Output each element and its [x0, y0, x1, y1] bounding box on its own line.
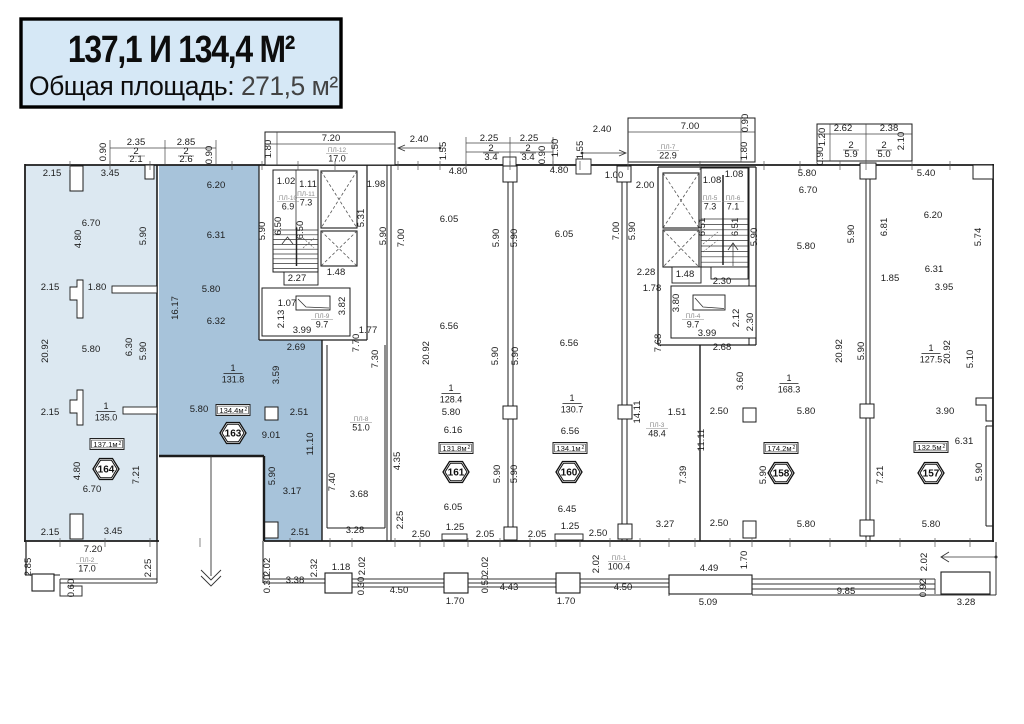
svg-text:5.80: 5.80	[190, 404, 209, 415]
svg-text:2.02: 2.02	[262, 558, 273, 577]
svg-text:7.21: 7.21	[875, 466, 886, 485]
svg-text:6.32: 6.32	[207, 316, 226, 327]
svg-text:163: 163	[225, 429, 242, 440]
svg-text:6.9: 6.9	[282, 202, 295, 212]
svg-text:6.56: 6.56	[440, 321, 459, 332]
svg-text:0.90: 0.90	[204, 146, 215, 165]
svg-text:5.90: 5.90	[627, 222, 638, 241]
svg-text:1.70: 1.70	[739, 551, 750, 570]
svg-text:2.15: 2.15	[41, 407, 60, 418]
svg-text:6.51: 6.51	[697, 218, 708, 237]
svg-text:2: 2	[119, 441, 122, 447]
svg-text:127.5: 127.5	[920, 355, 943, 365]
svg-text:1.78: 1.78	[643, 283, 662, 294]
svg-text:6.70: 6.70	[799, 185, 818, 196]
svg-text:6.31: 6.31	[207, 230, 226, 241]
svg-text:2.15: 2.15	[41, 282, 60, 293]
svg-text:5.80: 5.80	[797, 241, 816, 252]
svg-text:1: 1	[928, 343, 933, 353]
svg-text:3.45: 3.45	[101, 168, 120, 179]
svg-text:7.20: 7.20	[84, 544, 103, 555]
svg-text:1.50: 1.50	[550, 139, 561, 158]
svg-text:2.85: 2.85	[23, 558, 34, 577]
svg-text:5.90: 5.90	[758, 466, 769, 485]
svg-text:2.05: 2.05	[528, 529, 547, 540]
svg-text:6.31: 6.31	[955, 436, 974, 447]
svg-text:7.21: 7.21	[131, 466, 142, 485]
svg-text:4.80: 4.80	[550, 165, 569, 176]
svg-text:135.0: 135.0	[95, 413, 118, 423]
svg-text:1: 1	[448, 383, 453, 393]
svg-text:131.8: 131.8	[222, 375, 245, 385]
svg-text:5.90: 5.90	[846, 225, 857, 244]
svg-text:2.40: 2.40	[593, 124, 612, 135]
svg-text:4.50: 4.50	[614, 582, 633, 593]
svg-text:6.56: 6.56	[561, 426, 580, 437]
svg-text:1.11: 1.11	[299, 179, 317, 190]
svg-text:3.28: 3.28	[957, 597, 976, 608]
svg-text:2.25: 2.25	[143, 559, 154, 578]
svg-text:7.00: 7.00	[396, 229, 407, 248]
svg-text:2.62: 2.62	[834, 123, 853, 134]
svg-text:1.85: 1.85	[881, 273, 900, 284]
svg-text:51.0: 51.0	[352, 423, 370, 433]
svg-text:6.16: 6.16	[444, 425, 463, 436]
svg-text:1.25: 1.25	[446, 522, 465, 533]
svg-text:2.51: 2.51	[290, 407, 309, 418]
svg-text:7.68: 7.68	[653, 334, 664, 353]
svg-text:1: 1	[569, 393, 574, 403]
svg-text:3.17: 3.17	[283, 486, 302, 497]
svg-text:7.70: 7.70	[351, 334, 362, 353]
svg-text:2.25: 2.25	[395, 511, 406, 530]
svg-text:3.59: 3.59	[271, 366, 282, 385]
svg-text:9.7: 9.7	[316, 320, 329, 330]
svg-text:3.38: 3.38	[286, 575, 305, 586]
svg-text:6.70: 6.70	[82, 218, 101, 229]
svg-text:0.60: 0.60	[66, 579, 77, 598]
svg-text:3.99: 3.99	[698, 328, 717, 339]
svg-text:1.08: 1.08	[725, 169, 744, 180]
svg-text:4.80: 4.80	[73, 230, 84, 249]
svg-text:7.00: 7.00	[681, 121, 700, 132]
svg-text:100.4: 100.4	[608, 562, 631, 572]
svg-text:2: 2	[582, 445, 585, 451]
svg-text:2.30: 2.30	[713, 276, 732, 287]
svg-text:3.80: 3.80	[671, 294, 682, 313]
svg-text:9.7: 9.7	[687, 320, 700, 330]
svg-text:6.31: 6.31	[925, 264, 944, 275]
svg-text:2.10: 2.10	[896, 132, 907, 151]
svg-text:3.28: 3.28	[346, 525, 365, 536]
svg-text:6.45: 6.45	[558, 504, 577, 515]
svg-text:Общая площадь: 271,5 м²: Общая площадь: 271,5 м²	[29, 71, 338, 101]
svg-text:3.82: 3.82	[337, 297, 348, 316]
svg-text:2: 2	[793, 445, 796, 451]
svg-text:2.68: 2.68	[713, 342, 732, 353]
svg-text:1.48: 1.48	[676, 269, 695, 280]
svg-text:5.80: 5.80	[202, 284, 221, 295]
svg-text:1.48: 1.48	[327, 267, 346, 278]
svg-text:6.20: 6.20	[207, 180, 226, 191]
svg-text:5.90: 5.90	[491, 229, 502, 248]
svg-text:6.05: 6.05	[444, 502, 463, 513]
svg-text:168.3: 168.3	[778, 385, 801, 395]
svg-text:5.90: 5.90	[509, 465, 520, 484]
svg-text:1.80: 1.80	[88, 282, 107, 293]
svg-text:0.50: 0.50	[480, 575, 491, 594]
svg-text:1.98: 1.98	[367, 179, 386, 190]
svg-text:4.35: 4.35	[392, 452, 403, 471]
svg-text:1.02: 1.02	[277, 176, 296, 187]
svg-text:3.45: 3.45	[104, 526, 123, 537]
svg-text:0.90: 0.90	[537, 146, 548, 165]
svg-text:2: 2	[245, 407, 248, 413]
svg-text:20.92: 20.92	[421, 341, 432, 365]
svg-text:2.30: 2.30	[745, 313, 756, 332]
svg-text:157: 157	[923, 469, 940, 480]
svg-text:9.85: 9.85	[837, 586, 856, 597]
svg-text:6.81: 6.81	[879, 218, 890, 237]
svg-text:5.80: 5.80	[797, 519, 816, 530]
svg-text:6.20: 6.20	[924, 210, 943, 221]
svg-text:16.17: 16.17	[170, 296, 181, 320]
svg-text:164: 164	[98, 465, 115, 476]
svg-text:2.02: 2.02	[357, 557, 368, 576]
svg-text:1.08: 1.08	[703, 175, 722, 186]
svg-text:2: 2	[468, 445, 471, 451]
svg-text:5.90: 5.90	[138, 342, 149, 361]
svg-text:5.90: 5.90	[749, 228, 760, 247]
svg-text:5.90: 5.90	[138, 227, 149, 246]
svg-text:3.99: 3.99	[293, 325, 312, 336]
svg-text:20.92: 20.92	[942, 340, 953, 364]
svg-text:2.12: 2.12	[731, 309, 742, 328]
svg-text:5.0: 5.0	[877, 149, 890, 160]
svg-text:5.80: 5.80	[82, 344, 101, 355]
svg-text:11.11: 11.11	[696, 429, 707, 451]
svg-text:174.2м: 174.2м	[767, 444, 791, 453]
svg-text:2.50: 2.50	[412, 529, 431, 540]
svg-text:1.18: 1.18	[332, 562, 351, 573]
svg-text:2.69: 2.69	[287, 342, 306, 353]
svg-text:48.4: 48.4	[648, 429, 666, 439]
svg-text:132.5м: 132.5м	[917, 443, 941, 452]
svg-text:6.30: 6.30	[124, 338, 135, 357]
svg-text:161: 161	[448, 468, 465, 479]
svg-text:1.55: 1.55	[438, 142, 449, 161]
svg-text:2.02: 2.02	[480, 557, 491, 576]
svg-text:6.51: 6.51	[730, 218, 741, 237]
svg-text:6.50: 6.50	[273, 217, 284, 236]
svg-text:160: 160	[561, 468, 578, 479]
svg-text:4.80: 4.80	[72, 462, 83, 481]
svg-text:5.90: 5.90	[492, 465, 503, 484]
svg-text:137.1м: 137.1м	[93, 440, 117, 449]
svg-text:2.13: 2.13	[276, 310, 287, 329]
svg-text:0.30: 0.30	[356, 577, 367, 596]
svg-text:11.10: 11.10	[305, 432, 316, 455]
svg-text:3.90: 3.90	[936, 406, 955, 417]
svg-text:7.3: 7.3	[300, 198, 313, 208]
svg-text:6.70: 6.70	[83, 484, 102, 495]
svg-text:7.40: 7.40	[327, 473, 338, 492]
svg-text:5.90: 5.90	[267, 467, 278, 486]
svg-text:2.32: 2.32	[309, 559, 320, 578]
svg-text:158: 158	[773, 469, 790, 480]
svg-text:5.80: 5.80	[922, 519, 941, 530]
svg-text:2.15: 2.15	[41, 527, 60, 538]
svg-text:2.51: 2.51	[291, 527, 310, 538]
svg-text:2: 2	[943, 444, 946, 450]
svg-text:3.95: 3.95	[935, 282, 954, 293]
svg-text:1.80: 1.80	[263, 140, 274, 159]
svg-text:5.90: 5.90	[509, 229, 520, 248]
svg-text:1.07: 1.07	[278, 298, 297, 309]
svg-text:5.80: 5.80	[798, 168, 817, 179]
svg-text:7.30: 7.30	[370, 350, 381, 369]
svg-text:1.51: 1.51	[668, 407, 687, 418]
svg-text:3.4: 3.4	[521, 152, 534, 163]
svg-text:17.0: 17.0	[328, 154, 346, 164]
svg-text:7.1: 7.1	[727, 202, 740, 212]
svg-text:3.68: 3.68	[350, 489, 369, 500]
svg-text:5.90: 5.90	[856, 342, 867, 361]
svg-text:5.74: 5.74	[973, 228, 984, 247]
svg-text:1.20: 1.20	[817, 128, 828, 147]
svg-text:5.90: 5.90	[510, 347, 521, 366]
svg-text:4.49: 4.49	[700, 563, 719, 574]
svg-text:2.40: 2.40	[410, 134, 429, 145]
svg-text:2.6: 2.6	[179, 154, 192, 165]
svg-text:6.05: 6.05	[555, 229, 574, 240]
svg-text:4.43: 4.43	[500, 582, 519, 593]
svg-text:6.05: 6.05	[440, 214, 459, 225]
svg-text:2.27: 2.27	[288, 273, 307, 284]
svg-text:1: 1	[103, 401, 108, 411]
svg-text:5.40: 5.40	[917, 168, 936, 179]
svg-text:17.0: 17.0	[78, 564, 96, 574]
svg-text:5.90: 5.90	[257, 222, 268, 241]
svg-text:2.02: 2.02	[591, 555, 602, 574]
svg-text:5.90: 5.90	[974, 463, 985, 482]
svg-text:5.80: 5.80	[442, 407, 461, 418]
svg-text:2.05: 2.05	[476, 529, 495, 540]
svg-text:2.50: 2.50	[589, 528, 608, 539]
svg-text:1.80: 1.80	[739, 142, 750, 161]
svg-text:20.92: 20.92	[40, 339, 51, 363]
svg-text:5.10: 5.10	[965, 350, 976, 369]
svg-text:3.4: 3.4	[484, 152, 497, 163]
svg-text:0.90: 0.90	[740, 114, 751, 133]
svg-text:2.00: 2.00	[636, 180, 655, 191]
svg-text:5.9: 5.9	[844, 149, 857, 160]
svg-text:134.1м: 134.1м	[556, 444, 580, 453]
svg-text:5.90: 5.90	[490, 347, 501, 366]
svg-text:0.90: 0.90	[98, 143, 109, 162]
svg-text:6.50: 6.50	[295, 221, 306, 240]
svg-text:4.50: 4.50	[390, 585, 409, 596]
svg-text:2.1: 2.1	[129, 154, 142, 165]
svg-text:3.60: 3.60	[735, 372, 746, 391]
svg-text:1.70: 1.70	[446, 596, 465, 607]
svg-text:131.8м: 131.8м	[442, 444, 466, 453]
svg-text:5.31: 5.31	[356, 209, 367, 228]
svg-text:1: 1	[786, 373, 791, 383]
svg-text:3.27: 3.27	[656, 519, 675, 530]
svg-text:2.50: 2.50	[710, 406, 729, 417]
svg-text:7.20: 7.20	[322, 133, 341, 144]
svg-text:2.15: 2.15	[43, 168, 62, 179]
svg-text:9.01: 9.01	[262, 430, 281, 441]
svg-text:1.70: 1.70	[557, 596, 576, 607]
svg-text:5.09: 5.09	[699, 597, 718, 608]
svg-text:2.28: 2.28	[637, 267, 656, 278]
svg-text:1.00: 1.00	[605, 170, 624, 181]
svg-text:0.92: 0.92	[918, 579, 929, 598]
svg-text:0.90: 0.90	[815, 147, 826, 166]
svg-text:7.39: 7.39	[678, 466, 689, 485]
svg-text:1.25: 1.25	[561, 521, 580, 532]
svg-text:5.90: 5.90	[378, 227, 389, 246]
svg-text:14.11: 14.11	[632, 400, 643, 423]
svg-text:5.80: 5.80	[797, 406, 816, 417]
svg-text:4.80: 4.80	[449, 166, 468, 177]
svg-text:130.7: 130.7	[561, 405, 584, 415]
svg-text:7.00: 7.00	[611, 222, 622, 241]
svg-text:6.56: 6.56	[560, 338, 579, 349]
svg-text:137,1 И 134,4 М²: 137,1 И 134,4 М²	[68, 28, 295, 70]
svg-text:2.50: 2.50	[710, 518, 729, 529]
svg-text:7.3: 7.3	[704, 202, 717, 212]
svg-text:128.4: 128.4	[440, 395, 463, 405]
svg-text:0.30: 0.30	[262, 575, 273, 594]
svg-text:134.4м: 134.4м	[219, 406, 243, 415]
svg-text:2.02: 2.02	[919, 553, 930, 572]
svg-text:1.55: 1.55	[575, 141, 586, 160]
svg-text:1: 1	[230, 363, 235, 373]
svg-text:20.92: 20.92	[834, 339, 845, 363]
svg-text:22.9: 22.9	[659, 151, 677, 161]
